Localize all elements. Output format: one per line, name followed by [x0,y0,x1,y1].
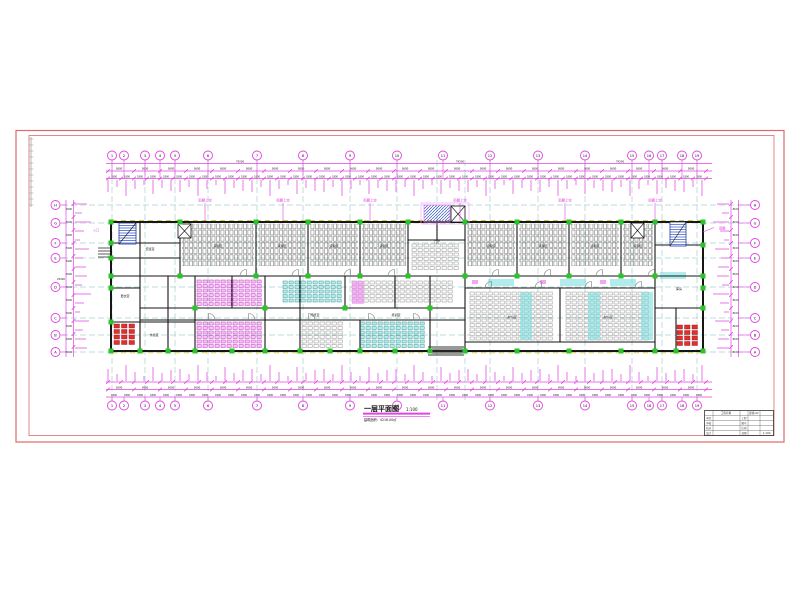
rect-shape [572,319,576,322]
rect-shape [512,319,516,322]
rect-shape [424,281,428,284]
rect-shape [488,279,514,286]
rect-shape [506,324,510,327]
rect-shape [608,324,612,327]
rect-shape [542,310,546,313]
rect-shape [536,301,540,304]
rect-shape [548,292,552,295]
rect-shape [600,280,606,284]
tiny-label: 1800 [501,175,507,178]
rect-shape [378,331,382,334]
tiny-label: 79200 [616,159,625,163]
rect-shape [388,295,392,298]
rect-shape [424,244,428,247]
tiny-label: 1800 [579,175,585,178]
rect-shape [602,306,606,309]
rect-shape [626,328,630,331]
column-marker [178,220,183,225]
titleblock-cell: 比例 [741,426,747,430]
rect-shape [494,301,498,304]
rect-shape [301,290,305,293]
path-shape [240,270,247,277]
rect-shape [308,340,312,343]
rect-shape [488,306,492,309]
rect-shape [319,281,323,284]
rect-shape [584,301,588,304]
tiny-label: 1800 [137,175,143,178]
grid-bubble-label: 7 [256,154,258,158]
rect-shape [470,328,474,331]
tiny-label: 8100 [66,338,72,341]
rect-shape [390,322,394,325]
rect-shape [283,290,287,293]
tiny-label: 1800 [384,175,390,178]
rect-shape [430,253,434,256]
rect-shape [370,286,374,289]
rect-shape [388,286,392,289]
rect-shape [424,253,428,256]
tiny-label: 1800 [202,175,208,178]
tiny-label: 1800 [566,394,572,397]
rect-shape [227,294,231,297]
rect-shape [418,253,422,256]
column-marker [109,241,114,246]
rect-shape [626,310,630,313]
rect-shape [283,286,287,289]
rect-shape [614,328,618,331]
rect-shape [239,345,243,348]
grid-bubble-label: 10 [395,154,400,158]
path-shape [596,270,603,277]
rect-shape [482,310,486,313]
column-marker [193,306,198,311]
rect-shape [602,333,606,336]
rect-shape [584,306,588,309]
column-marker [701,306,706,311]
grid-bubble-label: 19 [695,154,700,158]
titleblock-cell: 工程 [741,416,747,420]
rect-shape [506,337,510,340]
rect-shape [197,285,201,288]
rect-shape [337,299,341,302]
rect-shape [215,331,219,334]
rect-shape [448,267,452,270]
rect-shape [602,324,606,327]
rect-shape [572,324,576,327]
rect-shape [548,315,552,318]
rect-shape [578,310,582,313]
rect-shape [378,345,382,348]
tiny-label: 3600 [480,167,487,171]
rect-shape [572,292,576,295]
tiny-label: 1800 [605,394,611,397]
tiny-label: 8100 [66,325,72,328]
tiny-label: 79200 [236,159,245,163]
grid-bubble-label: 5 [174,404,176,408]
entrance-left-label: 入口 [93,228,99,232]
tiny-label: 1800 [449,394,455,397]
rect-shape [289,295,293,298]
rect-shape [283,281,287,284]
rect-shape [314,331,318,334]
rect-shape [402,322,406,325]
rect-shape [370,290,374,293]
rect-shape [608,306,612,309]
rect-shape [227,327,231,330]
tiny-label: 1800 [293,394,299,397]
tiny-label: 8100 [733,260,739,263]
path-shape [209,314,216,321]
rect-shape [626,324,630,327]
rect-shape [402,345,406,348]
rect-shape [382,281,386,284]
rect-shape [408,327,412,330]
rect-shape [548,328,552,331]
rect-shape [454,253,458,256]
rect-shape [420,340,424,343]
rect-shape [221,327,225,330]
rect-shape [566,319,570,322]
rect-shape [506,297,510,300]
rect-shape [578,306,582,309]
rect-shape [536,319,540,322]
rect-shape [239,327,243,330]
rect-shape [542,315,546,318]
rect-shape [209,336,213,339]
rect-shape [494,310,498,313]
rect-shape [602,319,606,322]
tiny-label: 1800 [449,175,455,178]
grid-bubble-label: 7 [256,404,258,408]
rect-shape [578,337,582,340]
rect-shape [470,292,474,295]
rect-shape [215,327,219,330]
rect-shape [233,289,237,292]
rect-shape [620,328,624,331]
rect-shape [370,295,374,298]
rect-shape [390,331,394,334]
red-table [122,335,128,339]
rect-shape [400,281,404,284]
rect-shape [384,336,388,339]
rect-shape [326,331,330,334]
rect-shape [251,322,255,325]
rect-shape [506,328,510,331]
rect-shape [197,303,201,306]
rect-shape [448,249,452,252]
tiny-label: 3600 [298,167,305,171]
titleblock-scale: 1:100 [762,431,770,435]
grid-bubble-label: 12 [488,154,493,158]
tiny-label: 8100 [66,221,72,224]
rect-shape [251,289,255,292]
rect-shape [376,290,380,293]
rect-shape [424,286,428,289]
tiny-label: 1800 [241,175,247,178]
rect-shape [302,336,306,339]
rect-shape [331,290,335,293]
rect-shape [360,331,364,334]
column-marker [406,220,411,225]
rect-shape [406,286,410,289]
rect-shape [476,301,480,304]
rect-shape [448,244,452,247]
rect-shape [488,310,492,313]
rect-shape [414,331,418,334]
tiny-label: 1800 [683,394,689,397]
rack-bay-label: 货架区 [486,243,495,248]
rect-shape [542,319,546,322]
tiny-label: 1800 [696,394,702,397]
rect-shape [257,280,261,283]
rect-shape [233,322,237,325]
tiny-label: 3600 [454,167,461,171]
tiny-label: 3600 [532,385,539,389]
tiny-label: 8100 [733,312,739,315]
tiny-label: 1800 [488,394,494,397]
column-marker [515,274,520,279]
tiny-label: 1800 [163,175,169,178]
rect-shape [512,324,516,327]
tiny-label: 1800 [397,175,403,178]
tiny-label: 1800 [618,175,624,178]
rect-shape [289,299,293,302]
rect-shape [245,327,249,330]
rect-shape [578,315,582,318]
tiny-label: 1800 [358,394,364,397]
tiny-label: 8100 [66,286,72,289]
rect-shape [620,301,624,304]
path-shape [369,314,376,321]
tiny-label: 3600 [194,167,201,171]
plan-annotations: 雨棚上空雨棚上空雨棚上空雨棚上空雨棚上空雨棚上空值班室更衣室休息室门厅办公区办公… [120,198,714,338]
rect-shape [500,324,504,327]
rect-shape [448,295,452,298]
column-marker [138,349,143,354]
rect-shape [239,340,243,343]
rect-shape [620,315,624,318]
rect-shape [412,295,416,298]
rect-shape [548,337,552,340]
rect-shape [542,333,546,336]
rect-shape [209,340,213,343]
rect-shape [251,336,255,339]
tiny-label: 8100 [733,247,739,250]
tiny-label: 3600 [376,167,383,171]
rect-shape [620,333,624,336]
rect-shape [197,294,201,297]
red-table [677,336,683,340]
rect-shape [331,281,335,284]
rect-shape [602,337,606,340]
rect-shape [476,333,480,336]
tiny-label: 1800 [631,394,637,397]
tiny-label: 1800 [566,175,572,178]
rect-shape [626,292,630,295]
tiny-label: 3600 [636,385,643,389]
rect-shape [536,324,540,327]
canopy-label: 雨棚上空 [453,198,467,203]
rect-shape [414,322,418,325]
rect-shape [382,290,386,293]
rack-bay-label: 货架区 [379,243,388,248]
rect-shape [366,322,370,325]
rect-shape [572,297,576,300]
rect-shape [313,295,317,298]
tiny-label: 3600 [350,385,357,389]
column-marker [193,349,198,354]
rect-shape [233,280,237,283]
rect-shape [548,333,552,336]
rect-shape [488,324,492,327]
tiny-label: 8100 [733,208,739,211]
grid-bubble-label: H [754,203,757,207]
tiny-label: 3600 [662,167,669,171]
rect-shape [245,280,249,283]
rect-shape [448,258,452,261]
rect-shape [314,322,318,325]
column-marker [343,306,348,311]
rect-shape [203,331,207,334]
tiny-label: 3600 [506,385,513,389]
rect-shape [257,322,261,325]
rect-shape [384,322,388,325]
rect-shape [308,336,312,339]
rect-shape [400,290,404,293]
rect-shape [614,315,618,318]
grid-bubble-label: 13 [536,154,541,158]
rect-shape [326,345,330,348]
column-marker [674,349,679,354]
rect-shape [482,337,486,340]
grid-bubble-label: 16 [647,154,652,158]
canopy-label: 雨棚上空 [363,198,377,203]
rect-shape [203,340,207,343]
grid-bubble-label: 18 [680,404,685,408]
rect-shape [239,322,243,325]
path-shape [292,270,299,277]
rect-shape [424,258,428,261]
rect-shape [584,333,588,336]
rect-shape [430,267,434,270]
tiny-label: 1800 [540,394,546,397]
tiny-label: 1800 [462,175,468,178]
rect-shape [331,295,335,298]
rect-shape [442,258,446,261]
rect-shape [412,249,416,252]
rect-shape [209,345,213,348]
rect-shape [372,345,376,348]
tiny-label: 1800 [436,175,442,178]
rect-shape [338,340,342,343]
rect-shape [608,328,612,331]
tiny-label: 1800 [514,394,520,397]
rect-shape [454,244,458,247]
rect-shape [314,327,318,330]
rect-shape [572,337,576,340]
rect-shape [203,289,207,292]
tiny-label: 3600 [584,385,591,389]
rect-shape [626,315,630,318]
tiny-label: 8100 [733,221,739,224]
canopy-right-label: 雨棚 [719,226,725,231]
tiny-label: 8100 [66,299,72,302]
tiny-label: 3600 [428,167,435,171]
rect-shape [372,327,376,330]
canopy-label: 雨棚上空 [648,198,662,203]
rect-shape [494,319,498,322]
rack-bay-label: 货架区 [538,243,547,248]
rect-shape [566,292,570,295]
rect-shape [536,306,540,309]
tiny-label: 1800 [202,394,208,397]
rect-shape [332,345,336,348]
rect-shape [620,292,624,295]
rect-shape [430,290,434,293]
rect-shape [470,324,474,327]
rect-shape [584,310,588,313]
rect-shape [221,298,225,301]
rect-shape [506,310,510,313]
tiny-label: 8100 [733,351,739,354]
rect-shape [608,337,612,340]
canopy-label: 雨棚上空 [198,198,212,203]
tiny-label: 1800 [683,175,689,178]
rect-shape [319,286,323,289]
tiny-label: 1800 [410,394,416,397]
tiny-label: 1800 [319,394,325,397]
rect-shape [233,303,237,306]
rect-shape [408,331,412,334]
red-table [685,325,691,329]
tiny-label: 1800 [345,175,351,178]
tiny-label: 1800 [670,394,676,397]
rect-shape [396,331,400,334]
tiny-label: 3600 [480,385,487,389]
rect-shape [203,298,207,301]
column-marker [463,274,468,279]
titleblock-cell: 日期 [741,431,747,435]
grid-bubble-label: 16 [647,404,652,408]
entrance-canopy [424,205,450,222]
tiny-label: 1800 [592,394,598,397]
tiny-label: 1800 [306,175,312,178]
rect-shape [221,294,225,297]
rect-shape [442,249,446,252]
rect-shape [320,340,324,343]
rect-shape [352,281,364,304]
rect-shape [251,303,255,306]
rect-shape [608,292,612,295]
rect-shape [308,322,312,325]
tiny-label: 1800 [332,175,338,178]
column-marker [701,274,706,279]
rect-shape [396,322,400,325]
rect-shape [424,262,428,265]
rect-shape [295,299,299,302]
rect-shape [251,340,255,343]
tiny-label: 更衣室 [120,293,129,298]
rect-shape [314,345,318,348]
rect-shape [442,299,446,302]
rect-shape [251,280,255,283]
rect-shape [402,327,406,330]
rect-shape [221,285,225,288]
rect-shape [209,294,213,297]
rect-shape [476,324,480,327]
canopy-label: 雨棚上空 [558,198,572,203]
column-marker [428,349,433,354]
